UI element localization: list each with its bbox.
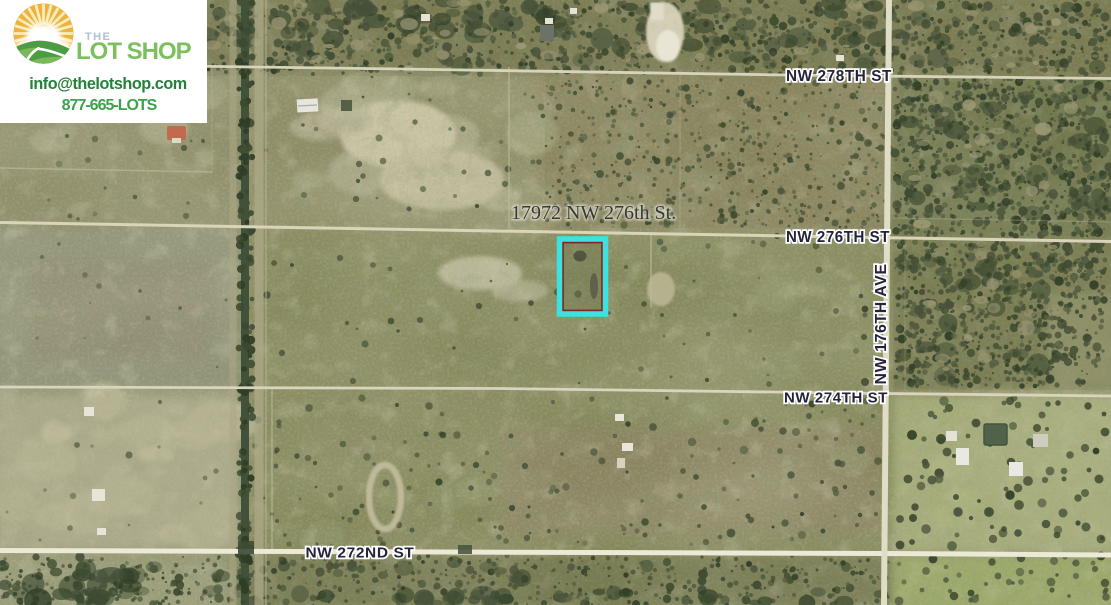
svg-text:NW 276TH ST: NW 276TH ST xyxy=(786,229,890,246)
svg-text:NW 278TH ST: NW 278TH ST xyxy=(786,68,892,85)
svg-text:NW 272ND ST: NW 272ND ST xyxy=(306,545,415,562)
svg-text:17972 NW 276th St.: 17972 NW 276th St. xyxy=(511,202,676,224)
svg-text:NW 274TH ST: NW 274TH ST xyxy=(784,390,888,407)
svg-text:NW 176TH AVE: NW 176TH AVE xyxy=(873,264,890,385)
